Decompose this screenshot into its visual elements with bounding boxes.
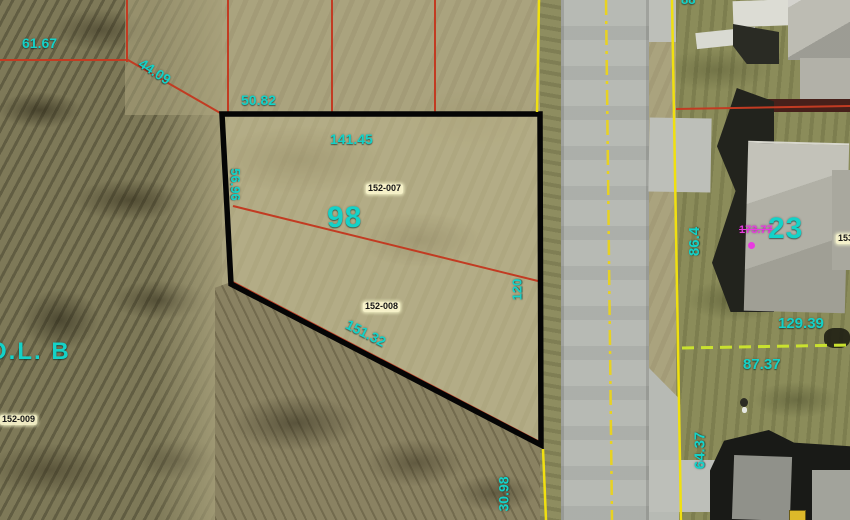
parcel-id-label-152-008: 152-008 <box>363 302 400 312</box>
driveway <box>649 0 676 42</box>
ground-object <box>740 398 748 407</box>
magenta-mark <box>748 242 755 249</box>
yellow-marker-icon <box>789 510 806 520</box>
house-roof <box>732 455 792 520</box>
measurement-label-30-98: 30.98 <box>497 476 511 511</box>
house-roof <box>832 170 850 270</box>
grass-strip <box>540 0 562 520</box>
ground-object <box>742 407 747 413</box>
parcel-id-label-152-007: 152-007 <box>366 184 403 194</box>
house-roof <box>788 0 850 60</box>
measurement-label-64-37: 64.37 <box>692 432 707 470</box>
terrain-patch <box>125 0 225 115</box>
house-roof <box>812 470 850 520</box>
measurement-label-120: 120 <box>510 279 523 301</box>
parcel-id-label-152-009: 152-009 <box>0 415 37 425</box>
measurement-label-56-96: 56.96 <box>229 168 242 201</box>
measurement-label-141-45: 141.45 <box>330 132 373 146</box>
measurement-label-61-67: 61.67 <box>22 36 57 50</box>
bush <box>824 328 850 348</box>
parcel-id-label-partial: 153 <box>836 234 850 244</box>
driveway <box>648 117 711 192</box>
measurement-label-top-partial: 88 <box>681 0 695 6</box>
road <box>561 0 649 520</box>
measurement-label-86-4: 86.4 <box>687 227 702 256</box>
measurement-label-50-82: 50.82 <box>241 93 276 107</box>
lot-number-98: 98 <box>327 203 362 233</box>
map-canvas[interactable]: 61.67 44.09 50.82 141.45 56.96 98 152-00… <box>0 0 850 520</box>
measurement-label-129-39: 129.39 <box>778 316 824 331</box>
lot-number-23: 23 <box>768 214 803 244</box>
measurement-label-87-37: 87.37 <box>743 357 781 372</box>
measurement-label-173-77: 173.77 <box>739 225 773 236</box>
house-roof <box>800 58 850 100</box>
outlot-label: O.L. B <box>0 340 71 364</box>
